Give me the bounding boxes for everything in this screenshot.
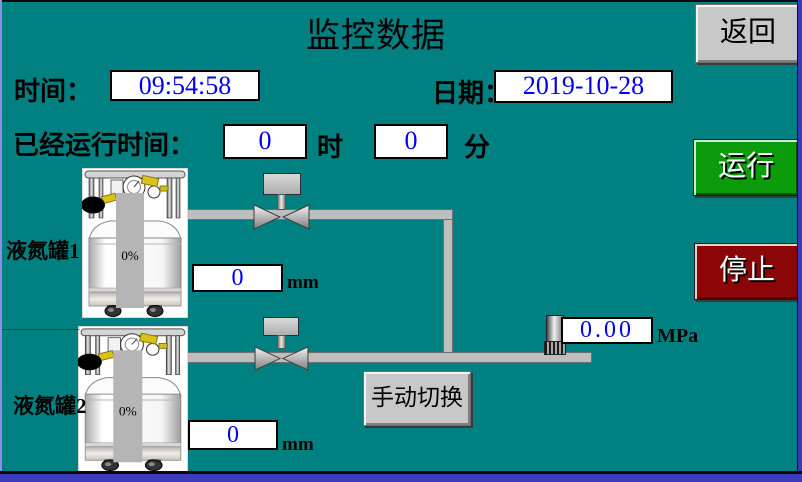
date-value: 2019-10-28 (494, 70, 673, 103)
valve2-actuator (263, 317, 299, 336)
runtime-minutes-value: 0 (374, 124, 448, 159)
valve1-icon (253, 204, 310, 230)
tank-level-bar: 0% (116, 193, 144, 308)
pipe-main-outlet (186, 352, 592, 363)
tank-cap-icon (82, 197, 105, 214)
back-button[interactable]: 返回 (695, 4, 801, 63)
screen-edge-bottom (0, 471, 802, 482)
tank1-level-unit: mm (287, 272, 319, 294)
time-label: 时间： (14, 71, 92, 108)
runtime-hours-value: 0 (223, 124, 307, 159)
tank-cap-icon (78, 354, 102, 371)
tank2-level-value: 0 (188, 420, 278, 450)
valve1-actuator (263, 173, 301, 195)
tank1-graphic: 0% (82, 168, 188, 318)
separator-line (0, 329, 80, 330)
tank2-level-unit: mm (282, 434, 314, 456)
run-button[interactable]: 运行 (693, 139, 799, 196)
pipe-vertical (443, 209, 453, 363)
pipe-tank1-outlet (186, 209, 453, 220)
pressure-value: 0.00 (561, 317, 653, 344)
tank-level-percent: 0% (121, 248, 139, 263)
tank1-level-value: 0 (192, 264, 283, 292)
runtime-label: 已经运行时间： (13, 125, 195, 162)
valve2-icon (253, 346, 310, 371)
screen-edge-left (0, 0, 2, 482)
tank2-graphic: 0% (78, 326, 188, 472)
tank-level-percent: 0% (119, 404, 137, 419)
hmi-monitor-screen: 监控数据 返回 时间： 09:54:58 日期： 2019-10-28 已经运行… (0, 0, 802, 482)
pressure-unit: MPa (657, 325, 698, 348)
manual-switch-button[interactable]: 手动切换 (363, 371, 471, 426)
runtime-hours-unit: 时 (317, 127, 343, 164)
tank2-label: 液氮罐2 (13, 390, 87, 420)
screen-edge-top (0, 0, 802, 2)
time-value: 09:54:58 (110, 70, 260, 101)
tank-level-bar: 0% (113, 350, 142, 462)
tank1-label: 液氮罐1 (6, 235, 80, 265)
screen-edge-right (797, 0, 802, 482)
stop-button[interactable]: 停止 (694, 243, 800, 300)
runtime-minutes-unit: 分 (464, 127, 490, 164)
page-title: 监控数据 (306, 8, 446, 57)
